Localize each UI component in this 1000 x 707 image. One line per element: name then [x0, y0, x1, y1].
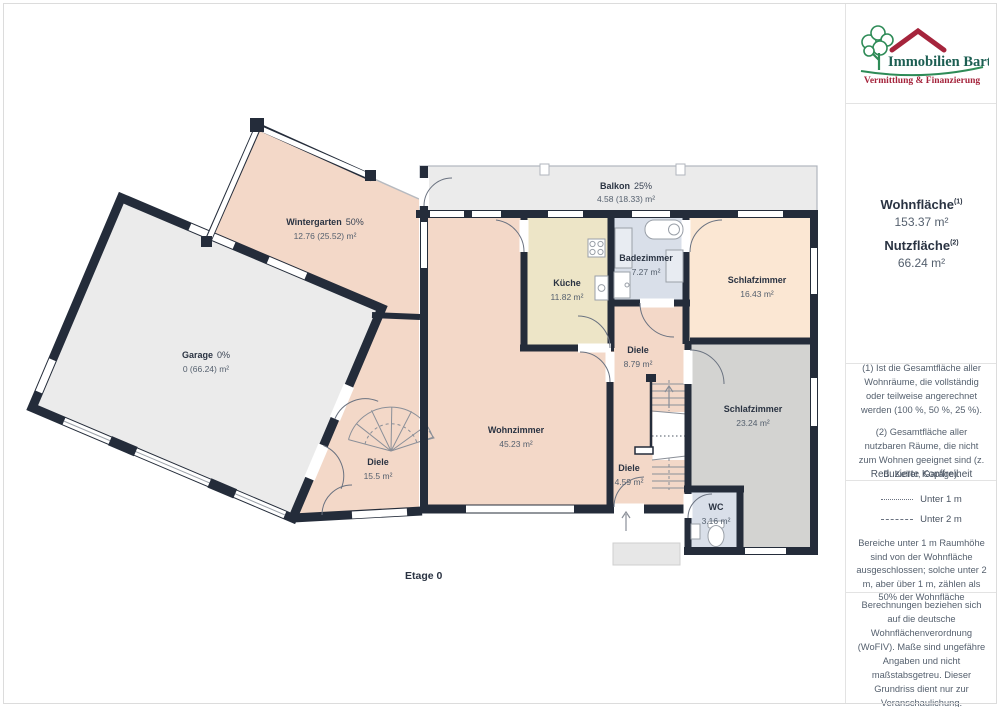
disclaimer-text: Berechnungen beziehen sich auf die deuts…: [856, 599, 987, 707]
svg-text:4.59 m²: 4.59 m²: [615, 477, 644, 487]
svg-text:12.76 (25.52) m²: 12.76 (25.52) m²: [294, 231, 357, 241]
wc-sink-icon: [691, 524, 700, 539]
svg-text:8.79 m²: 8.79 m²: [624, 359, 653, 369]
toilet-icon: [708, 526, 724, 547]
headroom-legend-section: Reduzierte Kopffreiheit Unter 1 m Unter …: [846, 481, 997, 593]
logo-section: Immobilien Bart Vermittlung & Finanzieru…: [846, 3, 997, 104]
svg-text:11.82 m²: 11.82 m²: [551, 292, 584, 302]
svg-text:Wohnzimmer: Wohnzimmer: [488, 425, 545, 435]
legend-under-1m: Unter 1 m: [881, 493, 962, 507]
bathtub-icon: [645, 220, 683, 239]
footnote-1: (1) Ist die Gesamtfläche aller Wohnräume…: [856, 362, 987, 418]
svg-text:45.23 m²: 45.23 m²: [499, 439, 533, 449]
svg-text:Diele: Diele: [627, 345, 649, 355]
svg-text:0 (66.24) m²: 0 (66.24) m²: [183, 364, 229, 374]
usable-area-label: Nutzfläche(2): [884, 238, 958, 253]
svg-text:Küche: Küche: [553, 278, 581, 288]
entrance-porch: [613, 543, 680, 565]
logo-name: Immobilien Bart: [888, 54, 989, 70]
dotted-line-icon: [881, 499, 913, 500]
floorplan-page: Wintergarten50% 12.76 (25.52) m² Balkon2…: [0, 0, 1000, 707]
footnotes-section: (1) Ist die Gesamtfläche aller Wohnräume…: [846, 364, 997, 481]
legend-under-2m: Unter 2 m: [881, 513, 962, 527]
svg-text:7.27 m²: 7.27 m²: [632, 267, 661, 277]
info-sidebar: Immobilien Bart Vermittlung & Finanzieru…: [845, 3, 997, 703]
svg-text:Diele: Diele: [618, 463, 640, 473]
living-area-value: 153.37 m²: [881, 215, 963, 229]
entrance-arrow: [622, 512, 630, 531]
living-area-label: Wohnfläche(1): [881, 197, 963, 212]
dashed-line-icon: [881, 519, 913, 520]
svg-text:Wintergarten50%: Wintergarten50%: [286, 217, 363, 227]
svg-text:15.5 m²: 15.5 m²: [364, 471, 393, 481]
roof-icon: [892, 31, 944, 50]
svg-text:23.24 m²: 23.24 m²: [736, 418, 770, 428]
logo-tagline: Vermittlung & Finanzierung: [863, 76, 980, 86]
legend-title: Reduzierte Kopffreiheit: [871, 468, 973, 483]
company-logo: Immobilien Bart Vermittlung & Finanzieru…: [855, 19, 989, 87]
area-summary-section: Wohnfläche(1) 153.37 m² Nutzfläche(2) 66…: [846, 104, 997, 364]
kitchen-sink-icon: [595, 276, 608, 300]
svg-text:16.43 m²: 16.43 m²: [740, 289, 774, 299]
tree-trunk: [873, 53, 879, 70]
svg-text:Badezimmer: Badezimmer: [619, 253, 673, 263]
svg-text:Schlafzimmer: Schlafzimmer: [724, 404, 783, 414]
tree-icon: [862, 26, 893, 56]
svg-text:Schlafzimmer: Schlafzimmer: [728, 275, 787, 285]
svg-text:Garage0%: Garage0%: [182, 350, 230, 360]
floor-label: Etage 0: [405, 570, 443, 582]
svg-text:3.16 m²: 3.16 m²: [702, 516, 731, 526]
bath-sink-icon: [614, 272, 630, 298]
disclaimer-section: Berechnungen beziehen sich auf die deuts…: [846, 593, 997, 707]
svg-text:Diele: Diele: [367, 457, 389, 467]
svg-text:Balkon25%: Balkon25%: [600, 181, 652, 191]
svg-text:WC: WC: [709, 502, 724, 512]
svg-text:4.58 (18.33) m²: 4.58 (18.33) m²: [597, 194, 655, 204]
usable-area-value: 66.24 m²: [884, 256, 958, 270]
floorplan-drawing: Wintergarten50% 12.76 (25.52) m² Balkon2…: [0, 0, 845, 707]
